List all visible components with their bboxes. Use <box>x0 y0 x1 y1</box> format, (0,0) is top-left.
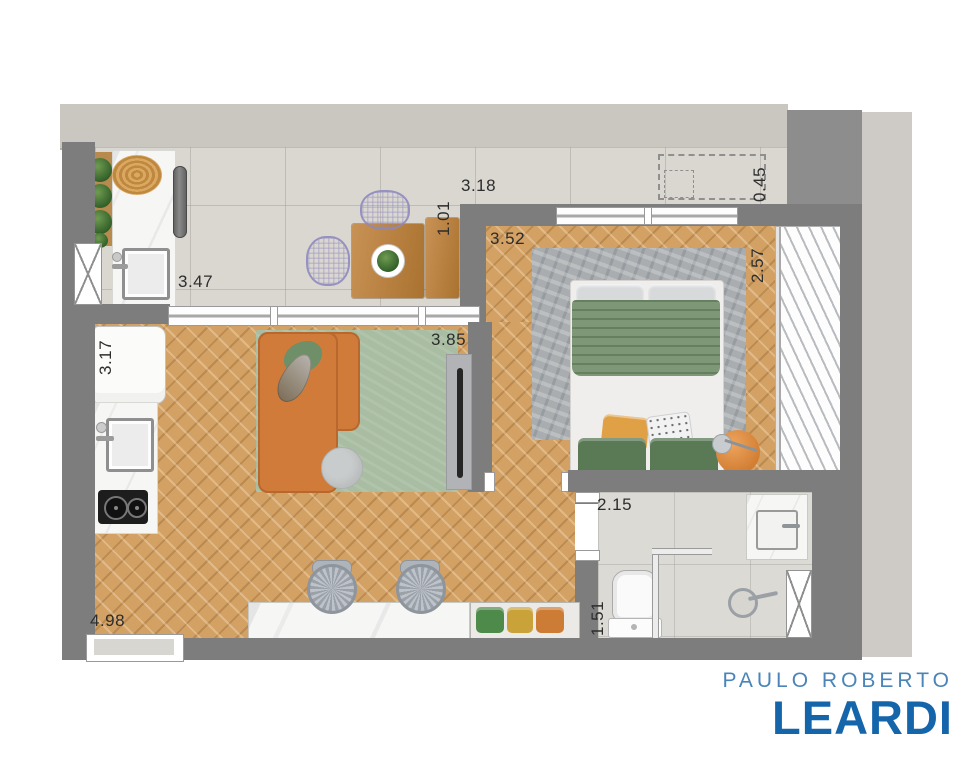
kitchen-faucet-icon <box>96 436 114 441</box>
sliding-door-divider <box>270 306 278 326</box>
dim-label: 2.15 <box>597 495 632 515</box>
cushion-yellow <box>507 607 533 633</box>
kitchen-tap-icon <box>96 422 107 433</box>
dim-label: 3.47 <box>178 272 213 292</box>
bed-duvet <box>572 300 720 376</box>
rattan-mat <box>112 155 162 195</box>
dining-chair <box>306 236 350 286</box>
balcony-sliding-door <box>168 306 480 326</box>
brand-logo: PAULO ROBERTO LEARDI <box>722 670 953 741</box>
table-plant-icon <box>377 250 399 272</box>
kitchen-window <box>74 243 102 305</box>
brand-logo-name: LEARDI <box>722 694 953 741</box>
vanity-sink <box>756 510 798 550</box>
flush-button-icon <box>631 624 637 630</box>
burner-icon <box>127 498 147 518</box>
stool <box>307 564 357 614</box>
grill <box>173 166 187 238</box>
wardrobe <box>775 226 842 472</box>
floor-plan-image: 3.47 3.18 1.01 0.45 3.52 2.57 3.17 3.85 … <box>0 0 972 768</box>
dim-label: 1.01 <box>434 192 454 236</box>
vanity-faucet-icon <box>782 524 800 528</box>
balcony-sink <box>122 248 170 300</box>
shower-drain <box>728 588 758 618</box>
balcony-soap-icon <box>112 252 122 262</box>
coffee-table <box>321 447 363 489</box>
tv <box>457 368 463 478</box>
dim-label: 4.98 <box>90 611 125 631</box>
shower-glass <box>652 550 659 638</box>
top-slab-band <box>60 104 788 150</box>
ac-condenser-inner-dashed <box>664 170 694 198</box>
bathroom-door-jamb <box>575 550 600 561</box>
dim-label: 2.57 <box>748 227 768 283</box>
kitchen-sink <box>106 418 154 472</box>
bathroom-window <box>786 570 812 638</box>
wall-left <box>62 142 95 658</box>
cushion-green <box>476 607 504 633</box>
dim-label: 1.51 <box>588 586 608 636</box>
balcony-faucet-icon <box>112 264 128 269</box>
burner-icon <box>104 496 128 520</box>
dim-label: 3.52 <box>490 229 525 249</box>
dim-label: 3.18 <box>461 176 496 196</box>
cushion-orange <box>536 607 564 633</box>
dim-label: 3.17 <box>96 327 116 375</box>
bedroom-window-divider <box>644 207 652 225</box>
dim-label: 0.45 <box>750 152 770 202</box>
stool <box>396 564 446 614</box>
brand-logo-top: PAULO ROBERTO <box>722 670 953 691</box>
dining-chair <box>360 190 410 230</box>
wall-right-lower <box>812 470 862 658</box>
sliding-door-divider <box>418 306 426 326</box>
wall-balcony-living <box>95 304 170 324</box>
dim-label: 3.85 <box>431 330 466 350</box>
table-lamp-icon <box>712 434 732 454</box>
bottom-window <box>94 639 174 655</box>
wall-right <box>840 226 862 470</box>
shower-glass-top <box>652 548 712 555</box>
right-slab-panel <box>860 112 912 657</box>
bedroom-door-jamb <box>484 472 495 492</box>
